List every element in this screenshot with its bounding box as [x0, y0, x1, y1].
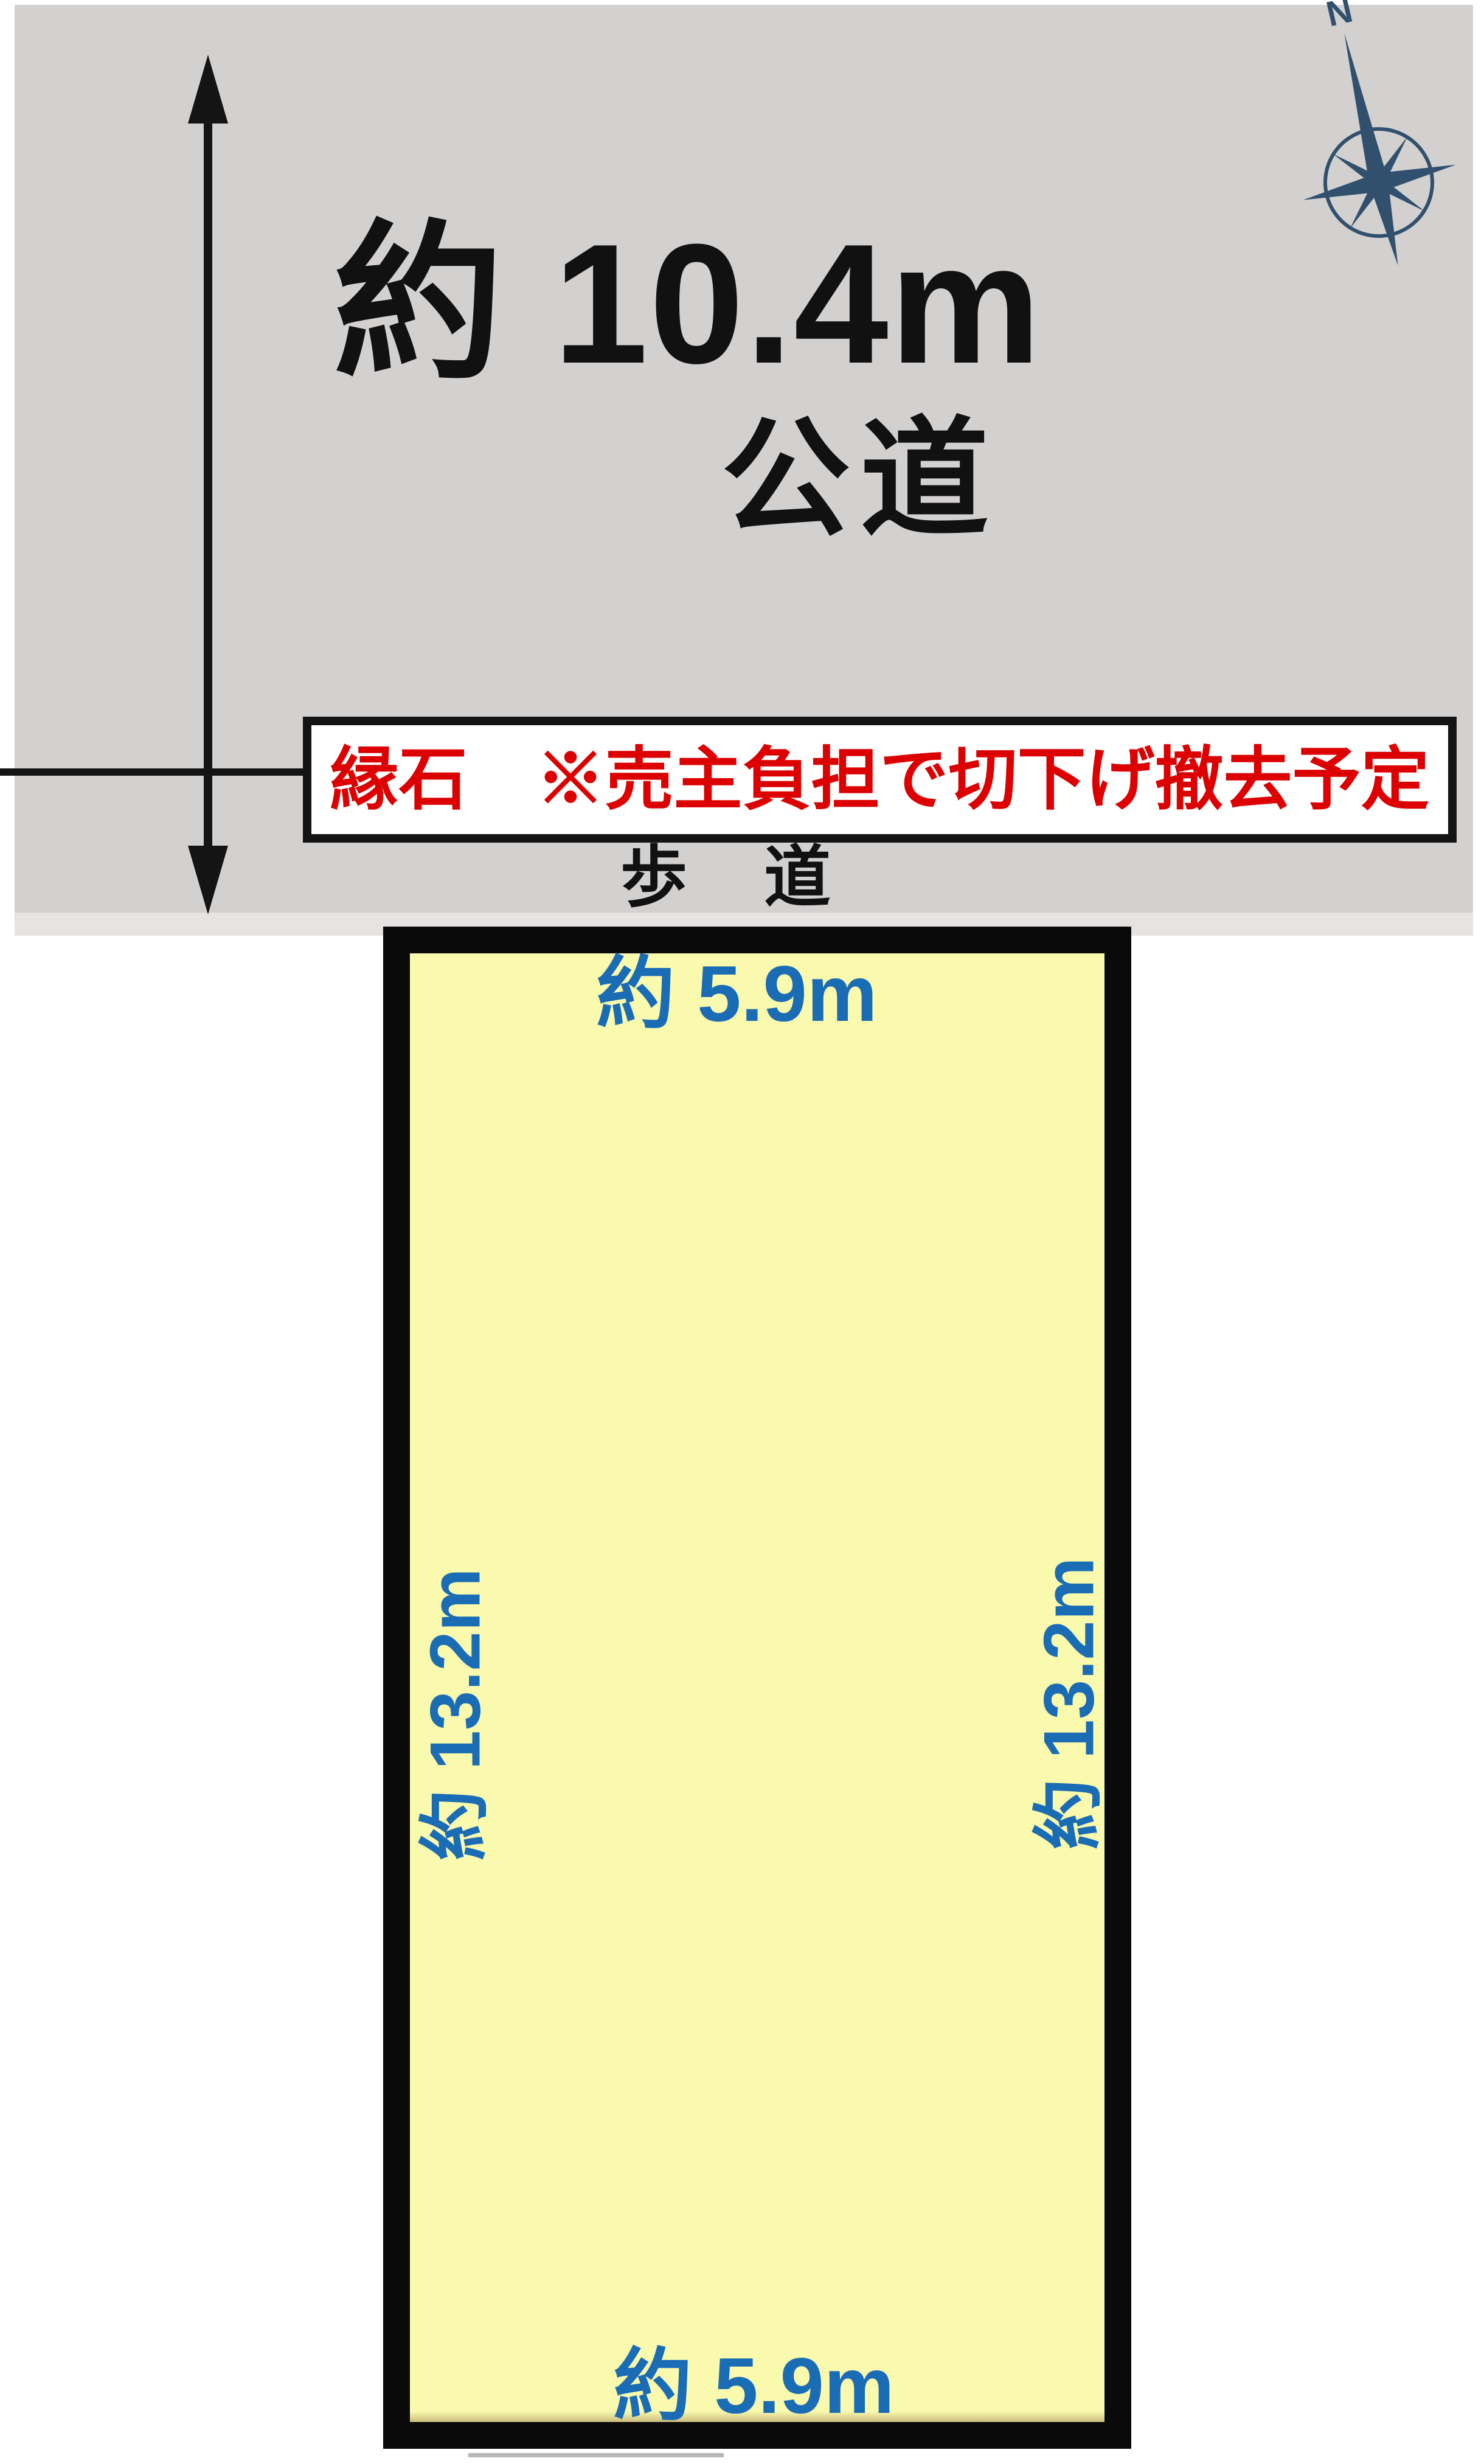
road-width-label: 約 10.4m — [333, 219, 1042, 389]
compass-rose-icon: N — [1190, 0, 1484, 389]
plot-dimension-right: 約 13.2m — [1033, 1557, 1104, 1850]
plot-parcel — [383, 927, 1131, 2449]
plot-dimension-left: 約 13.2m — [420, 1568, 491, 1860]
plot-dimension-top: 約 5.9m — [596, 954, 877, 1033]
compass-north-label: N — [1323, 0, 1356, 34]
road-span-arrow-icon — [182, 52, 234, 922]
sidewalk-label: 歩 道 — [620, 844, 836, 911]
plot-dimension-bottom: 約 5.9m — [613, 2346, 894, 2425]
cropped-boundary-line — [468, 2453, 724, 2457]
curb-note-text: 縁石 ※売主負担で切下げ撤去予定 — [330, 745, 1430, 814]
curb-note-box: 縁石 ※売主負担で切下げ撤去予定 — [303, 717, 1457, 843]
land-plot-diagram: 約 10.4m 公道 縁石 ※売主負担で切下げ撤去予定 歩 道 — [0, 0, 1484, 2464]
road-type-label: 公道 — [721, 415, 999, 544]
curb-line — [0, 768, 305, 776]
